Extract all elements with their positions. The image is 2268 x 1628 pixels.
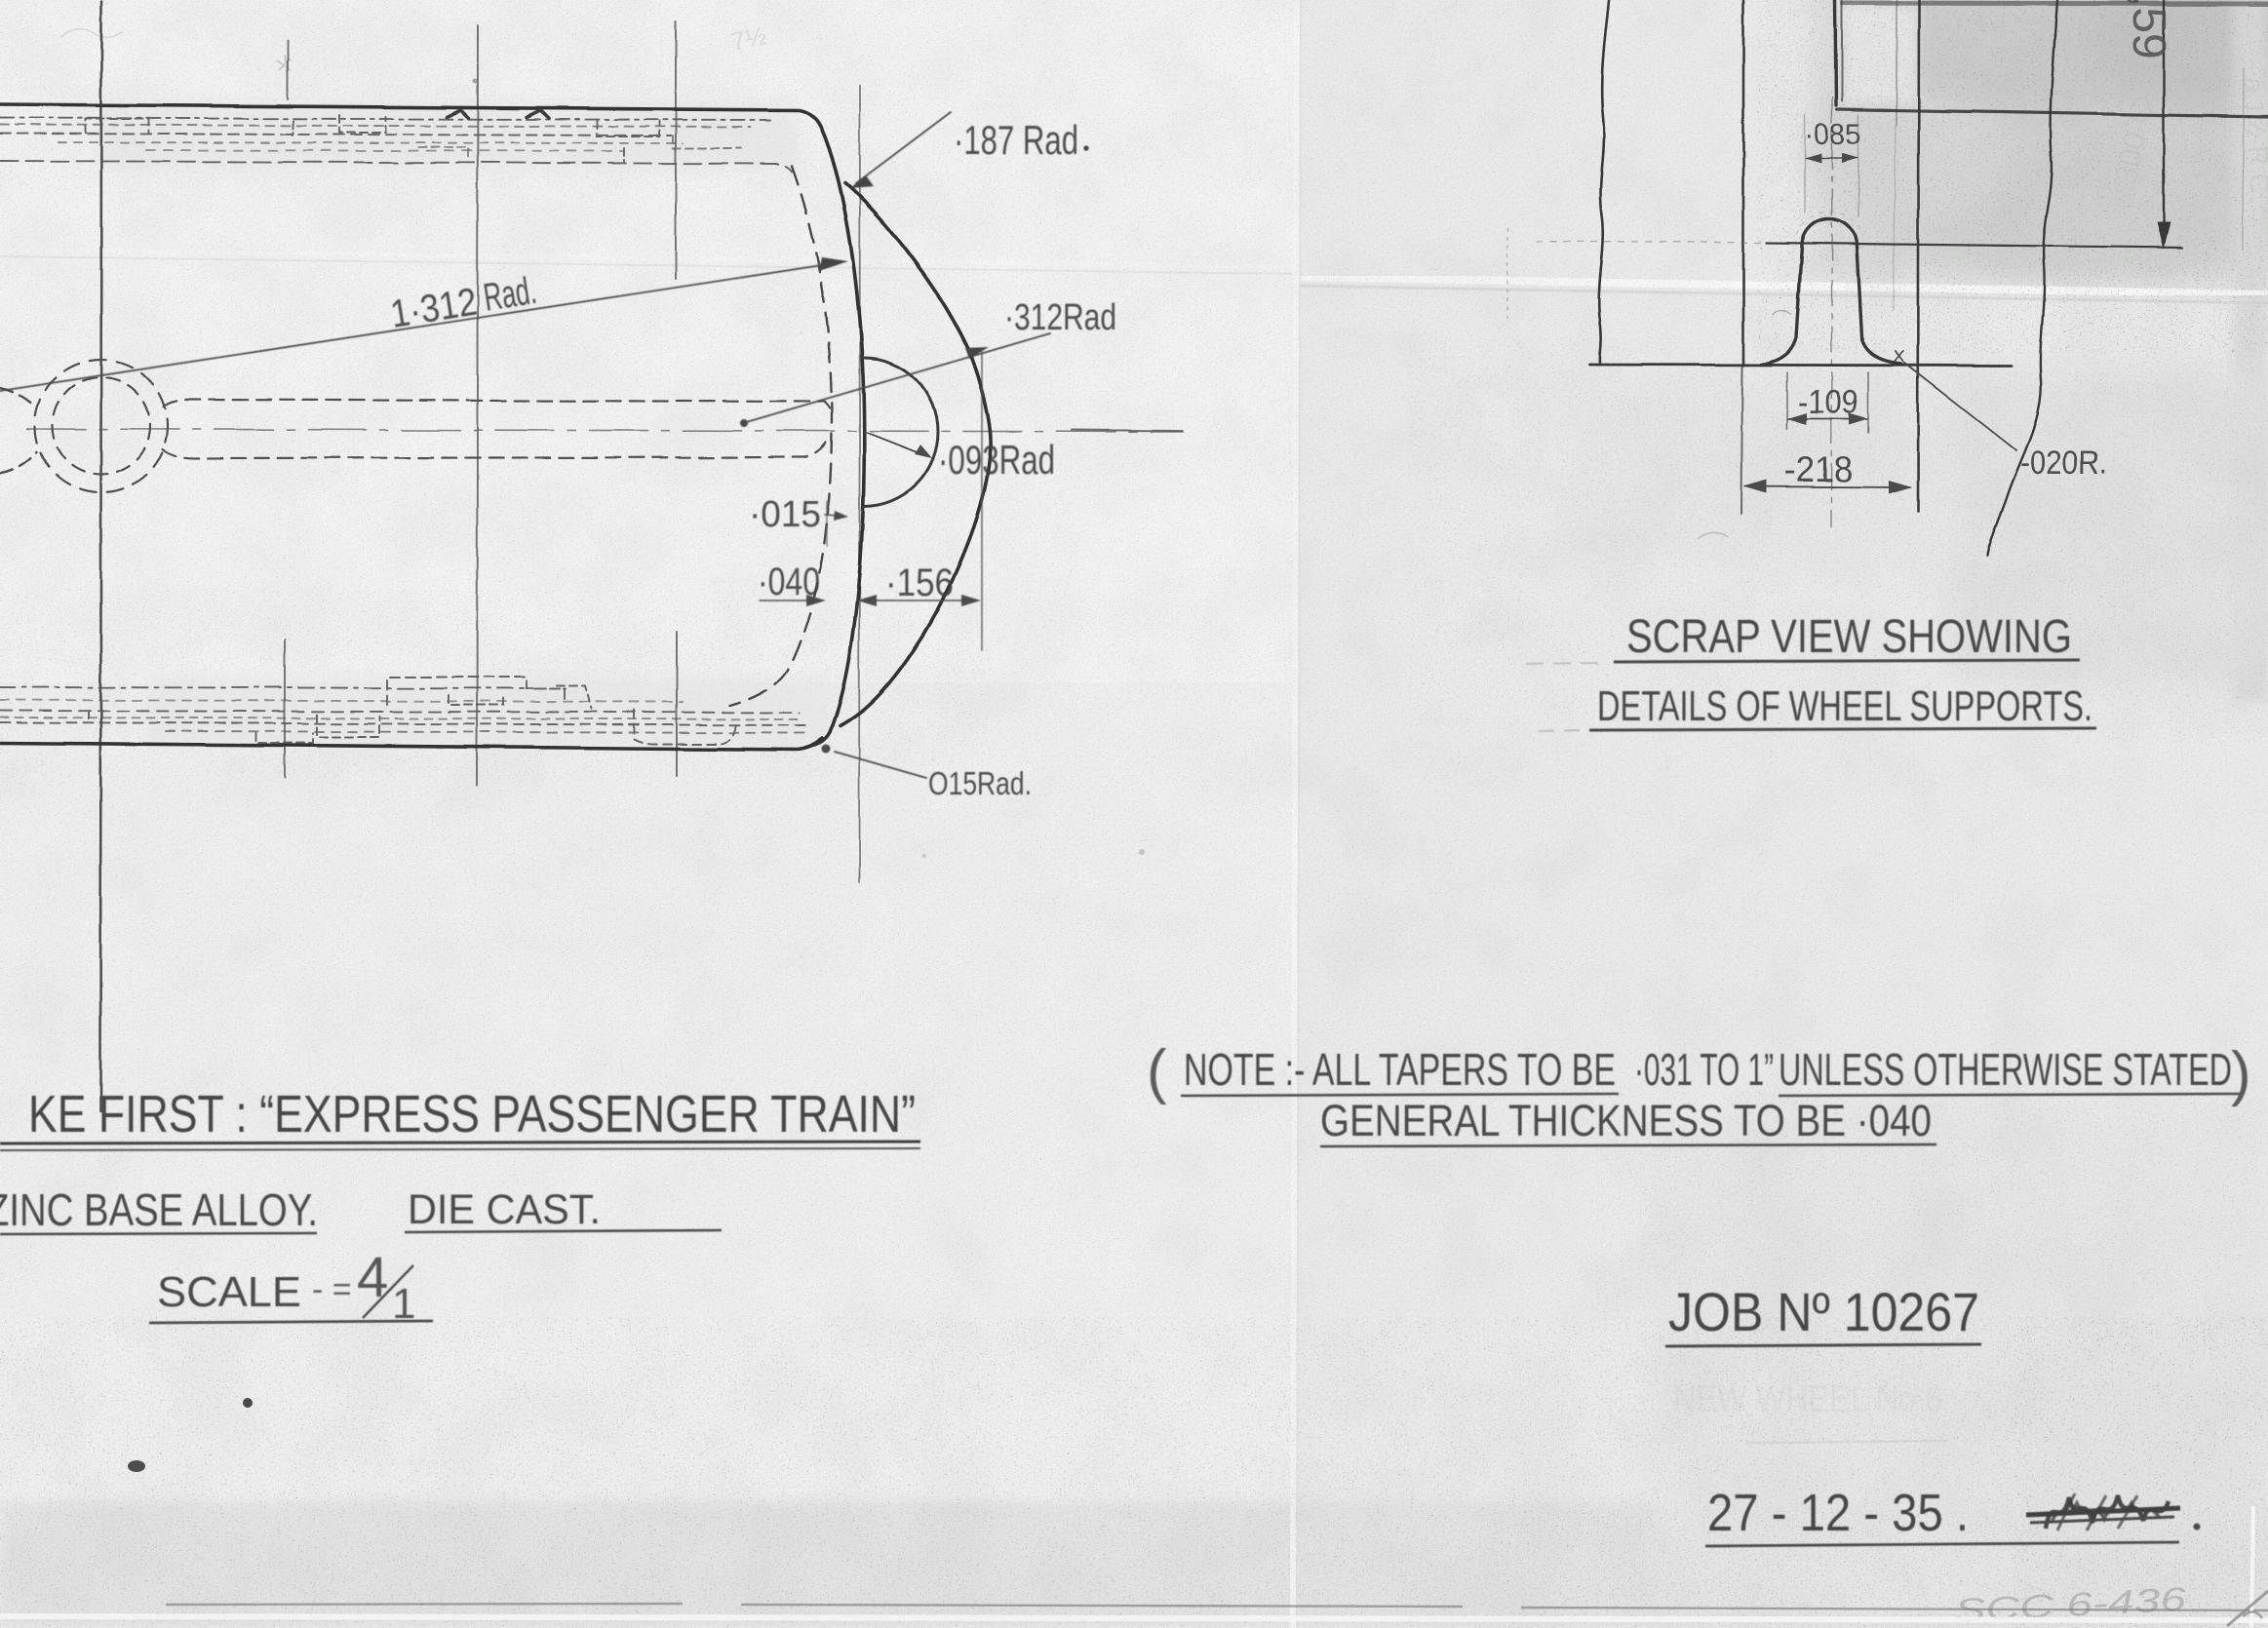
svg-text:·187 Rad: ·187 Rad — [954, 117, 1078, 163]
svg-text:SCRAP VIEW SHOWING: SCRAP VIEW SHOWING — [1626, 611, 2072, 663]
svg-text:(: ( — [1147, 1038, 1167, 1105]
svg-text:NEW WHEEL No 6: NEW WHEEL No 6 — [1673, 1379, 1942, 1420]
svg-text:·312Rad: ·312Rad — [1004, 297, 1116, 338]
svg-text:·015: ·015 — [749, 494, 821, 535]
svg-text:NOTE :- ALL TAPERS TO BE: NOTE :- ALL TAPERS TO BE — [1184, 1044, 1616, 1095]
svg-text:27 - 12 - 35 .: 27 - 12 - 35 . — [1707, 1484, 1969, 1542]
svg-text:·093Rad: ·093Rad — [938, 437, 1055, 483]
svg-text:- =: - = — [312, 1271, 352, 1308]
svg-text:SCALE: SCALE — [157, 1268, 301, 1316]
svg-text:Rad.: Rad. — [481, 269, 539, 320]
svg-text:-020R.: -020R. — [2020, 445, 2108, 482]
svg-text:KE FIRST : “EXPRESS PASSENGER: KE FIRST : “EXPRESS PASSENGER TRAIN” — [28, 1085, 916, 1143]
svg-text:ZINC BASE ALLOY.: ZINC BASE ALLOY. — [0, 1184, 318, 1235]
svg-text:DIE CAST.: DIE CAST. — [408, 1186, 601, 1233]
svg-text:·031 TO 1”: ·031 TO 1” — [1634, 1044, 1774, 1095]
svg-text:·085: ·085 — [1805, 117, 1861, 151]
svg-text:GENERAL THICKNESS TO BE ·040: GENERAL THICKNESS TO BE ·040 — [1320, 1096, 1932, 1145]
svg-text:,59: ,59 — [2123, 0, 2174, 59]
svg-text:4: 4 — [357, 1246, 388, 1309]
svg-text:JOB Nº 10267: JOB Nº 10267 — [1668, 1281, 1979, 1342]
svg-text:): ) — [2231, 1040, 2251, 1107]
svg-text:DETAILS OF WHEEL SUPPORTS.: DETAILS OF WHEEL SUPPORTS. — [1597, 682, 2092, 730]
svg-text:·156: ·156 — [885, 562, 954, 604]
svg-text:-218: -218 — [1784, 449, 1853, 489]
svg-text:UNLESS OTHERWISE STATED: UNLESS OTHERWISE STATED — [1779, 1044, 2232, 1095]
svg-text:O15Rad.: O15Rad. — [928, 765, 1032, 801]
